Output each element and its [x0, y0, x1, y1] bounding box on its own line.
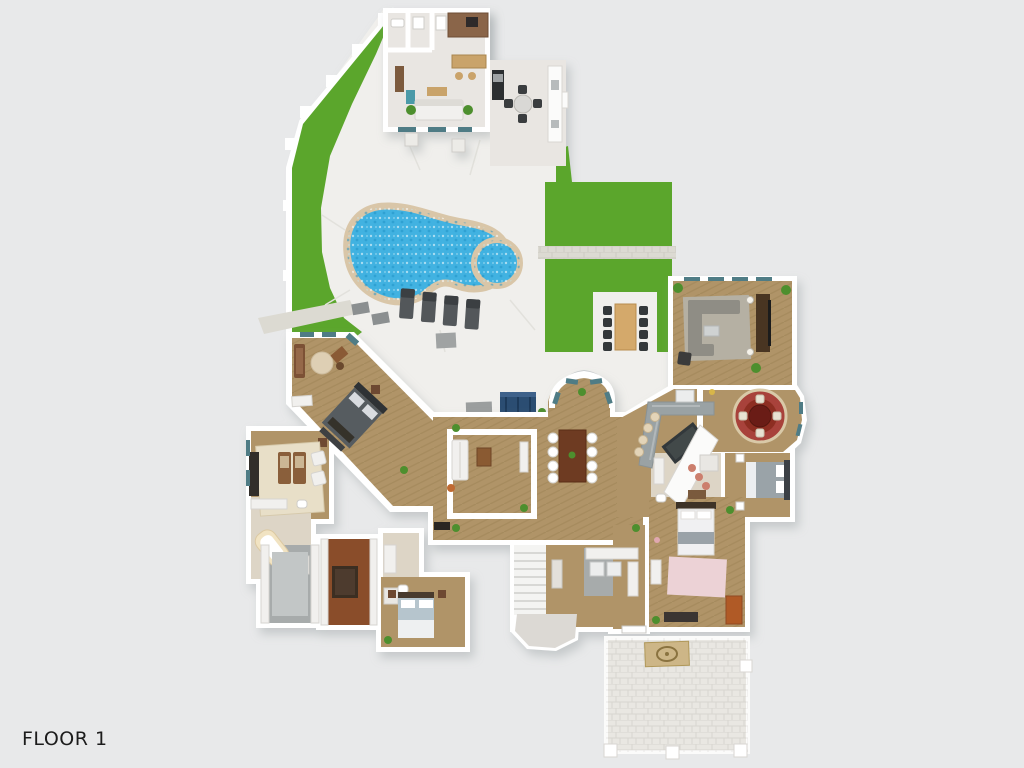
staircase: [514, 545, 546, 615]
pendant: [709, 389, 715, 395]
floor-label: FLOOR 1: [22, 728, 108, 750]
desk: [651, 560, 661, 584]
console-table: [520, 442, 528, 472]
nightstand: [371, 385, 380, 394]
plant: [400, 466, 408, 474]
patio-mat: [436, 332, 457, 348]
floor-plan-canvas: [0, 0, 1024, 768]
toilet: [398, 585, 408, 593]
toilet: [297, 500, 307, 508]
front-door: [622, 626, 646, 633]
outdoor-dining: [593, 292, 657, 354]
vanity: [384, 545, 396, 573]
area-rug: [667, 557, 727, 598]
coffee-table: [477, 448, 491, 466]
pool-house-dresser: [395, 66, 404, 92]
dining-room: [548, 430, 597, 483]
vanity: [251, 499, 287, 509]
nook-table: [749, 405, 771, 427]
carpet: [272, 552, 308, 616]
headboard: [398, 592, 434, 598]
outdoor-kitchen-patio: [490, 60, 568, 166]
floor-plan-page: FLOOR 1: [0, 0, 1024, 768]
paver-walk-texture: [538, 246, 676, 259]
toilet: [656, 494, 666, 502]
mud-bench: [552, 560, 562, 588]
accent-pot: [447, 484, 455, 492]
outdoor-dining-table: [615, 304, 636, 350]
entry-emblem-mat: [645, 641, 690, 667]
dryer: [607, 562, 621, 576]
nightstand: [388, 590, 396, 598]
coffee-table: [704, 326, 719, 336]
washer: [590, 562, 604, 576]
pool-house-bench: [406, 90, 415, 104]
bench: [664, 612, 698, 622]
desk-chair: [336, 362, 344, 370]
round-rug: [311, 352, 333, 374]
powder-counter: [434, 522, 450, 530]
armchair: [311, 470, 327, 486]
console: [292, 395, 313, 406]
floor-lamp: [747, 297, 754, 304]
driveway-courtyard: [604, 638, 752, 759]
tv: [768, 300, 771, 346]
vanity: [654, 458, 664, 484]
armchair: [311, 450, 327, 466]
credenza: [249, 452, 259, 496]
pool-house: [383, 8, 490, 152]
nightstand: [736, 454, 744, 462]
headboard: [676, 502, 716, 509]
coffee-table: [427, 87, 447, 96]
plant: [384, 636, 392, 644]
dresser: [726, 596, 742, 624]
nightstand: [438, 590, 446, 598]
floor-lamp: [747, 349, 754, 356]
armchair: [677, 351, 692, 366]
shower: [700, 455, 718, 471]
pouf: [654, 537, 660, 543]
nightstand: [736, 502, 744, 510]
pool-house-windows: [398, 127, 472, 132]
headboard: [784, 460, 790, 500]
tv-console: [756, 294, 770, 352]
desk: [688, 490, 706, 499]
fridge: [676, 390, 694, 402]
